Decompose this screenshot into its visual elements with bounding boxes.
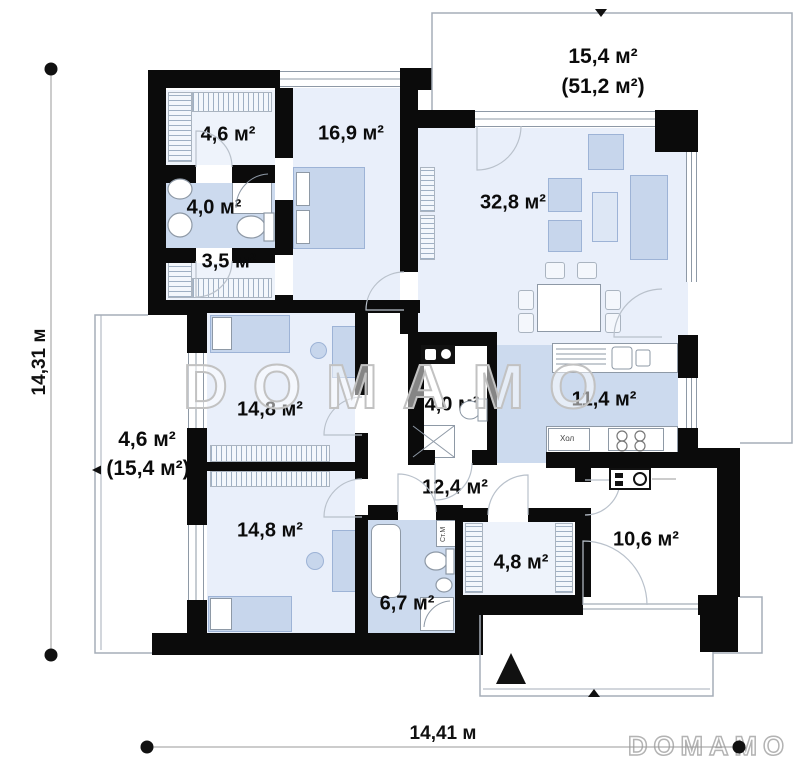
radiator <box>420 167 435 212</box>
dining-chair <box>605 290 621 310</box>
window <box>686 152 697 282</box>
armchair <box>548 220 582 252</box>
wall <box>187 428 207 525</box>
wall <box>368 505 398 520</box>
wall <box>575 468 591 482</box>
terrace-left-area-total: (15,4 м²) <box>106 457 189 481</box>
room-label-wardrobe-small: 3,5 м² <box>202 251 257 274</box>
bed-pillow <box>296 172 310 206</box>
room-label-utility-room: 10,6 м² <box>613 529 679 552</box>
wall <box>207 462 368 471</box>
wall <box>166 248 196 263</box>
dining-chair <box>545 262 565 279</box>
wall <box>148 70 280 88</box>
room-label-bedroom-bottom: 14,8 м² <box>237 520 303 543</box>
room-label-living-room: 32,8 м² <box>480 192 546 215</box>
wall <box>436 505 463 520</box>
arrow-up-icon <box>588 689 600 697</box>
brand-logo: DOMAMO <box>628 731 790 762</box>
wall <box>408 450 435 465</box>
dining-chair <box>605 313 621 333</box>
entrance-threshold <box>583 604 698 609</box>
closet-hatch <box>168 92 192 162</box>
wall <box>207 300 420 313</box>
closet-hatch <box>465 523 483 593</box>
terrace-left-outline <box>95 315 152 653</box>
dimension-width: 14,41 м <box>410 723 477 745</box>
dining-table <box>537 284 601 332</box>
wall <box>463 508 488 522</box>
bed-pillow <box>212 317 232 350</box>
wall <box>232 165 275 183</box>
wall <box>455 520 463 633</box>
boiler-icon <box>610 469 676 489</box>
arrow-down-icon <box>595 9 607 17</box>
bed-pillow <box>210 598 232 630</box>
room-label-hallway: 12,4 м² <box>422 477 488 500</box>
room-label-bathroom-bottom: 6,7 м² <box>380 593 435 616</box>
stove-box <box>608 428 664 451</box>
wall <box>546 452 678 468</box>
room-label-wardrobe-bottom: 4,8 м² <box>494 552 549 575</box>
window <box>475 111 655 127</box>
wall <box>575 508 591 597</box>
sofa <box>630 175 668 260</box>
wall <box>152 633 463 655</box>
room-label-wardrobe-top: 4,6 м² <box>201 124 256 147</box>
armchair <box>548 178 582 212</box>
window <box>280 71 400 87</box>
wall <box>187 300 207 353</box>
dining-chair <box>518 290 534 310</box>
closet-hatch <box>210 445 330 462</box>
terrace-top-area: 15,4 м² <box>568 45 637 69</box>
entrance-triangle-icon <box>496 653 526 684</box>
dining-chair <box>577 262 597 279</box>
terrace-left-area: 4,6 м² <box>118 428 176 452</box>
wall <box>655 110 698 152</box>
wall <box>698 595 717 615</box>
watermark-text: DOMAMO <box>183 352 622 423</box>
closet-hatch <box>555 523 573 593</box>
wall <box>678 448 740 468</box>
closet-hatch <box>210 471 330 487</box>
closet-hatch <box>192 92 272 112</box>
room-label-bedroom-master: 16,9 м² <box>318 123 384 146</box>
wall <box>410 110 475 128</box>
terrace-top-area-total: (51,2 м²) <box>561 75 644 99</box>
radiator <box>420 215 435 260</box>
washing-machine-label: Ст.М <box>440 527 447 542</box>
closet-hatch <box>192 278 272 298</box>
desk-chair <box>306 552 324 570</box>
dining-chair <box>518 313 534 333</box>
wall <box>275 88 293 158</box>
wall <box>472 450 497 465</box>
wall <box>678 335 698 378</box>
wall <box>355 433 368 462</box>
wall <box>166 165 196 183</box>
wall <box>148 70 166 315</box>
bathtub <box>371 524 401 598</box>
fridge-label: Хол <box>560 434 574 443</box>
tv-chair <box>588 134 624 170</box>
window <box>686 378 697 428</box>
room-label-bathroom-top: 4,0 м² <box>187 197 242 220</box>
wall <box>400 68 432 90</box>
wall <box>355 515 368 633</box>
coffee-table <box>592 192 618 242</box>
floor-plan: 4,6 м² 16,9 м² 4,0 м² 3,5 м² 32,8 м² 14,… <box>0 0 800 768</box>
wall <box>717 467 740 597</box>
desk <box>332 530 356 592</box>
wall <box>528 508 575 522</box>
window <box>188 525 204 600</box>
dimension-height: 14,31 м <box>29 329 51 396</box>
wall <box>355 470 368 479</box>
wall <box>275 200 293 255</box>
arrow-left-icon <box>92 466 101 475</box>
bed-pillow <box>296 210 310 244</box>
